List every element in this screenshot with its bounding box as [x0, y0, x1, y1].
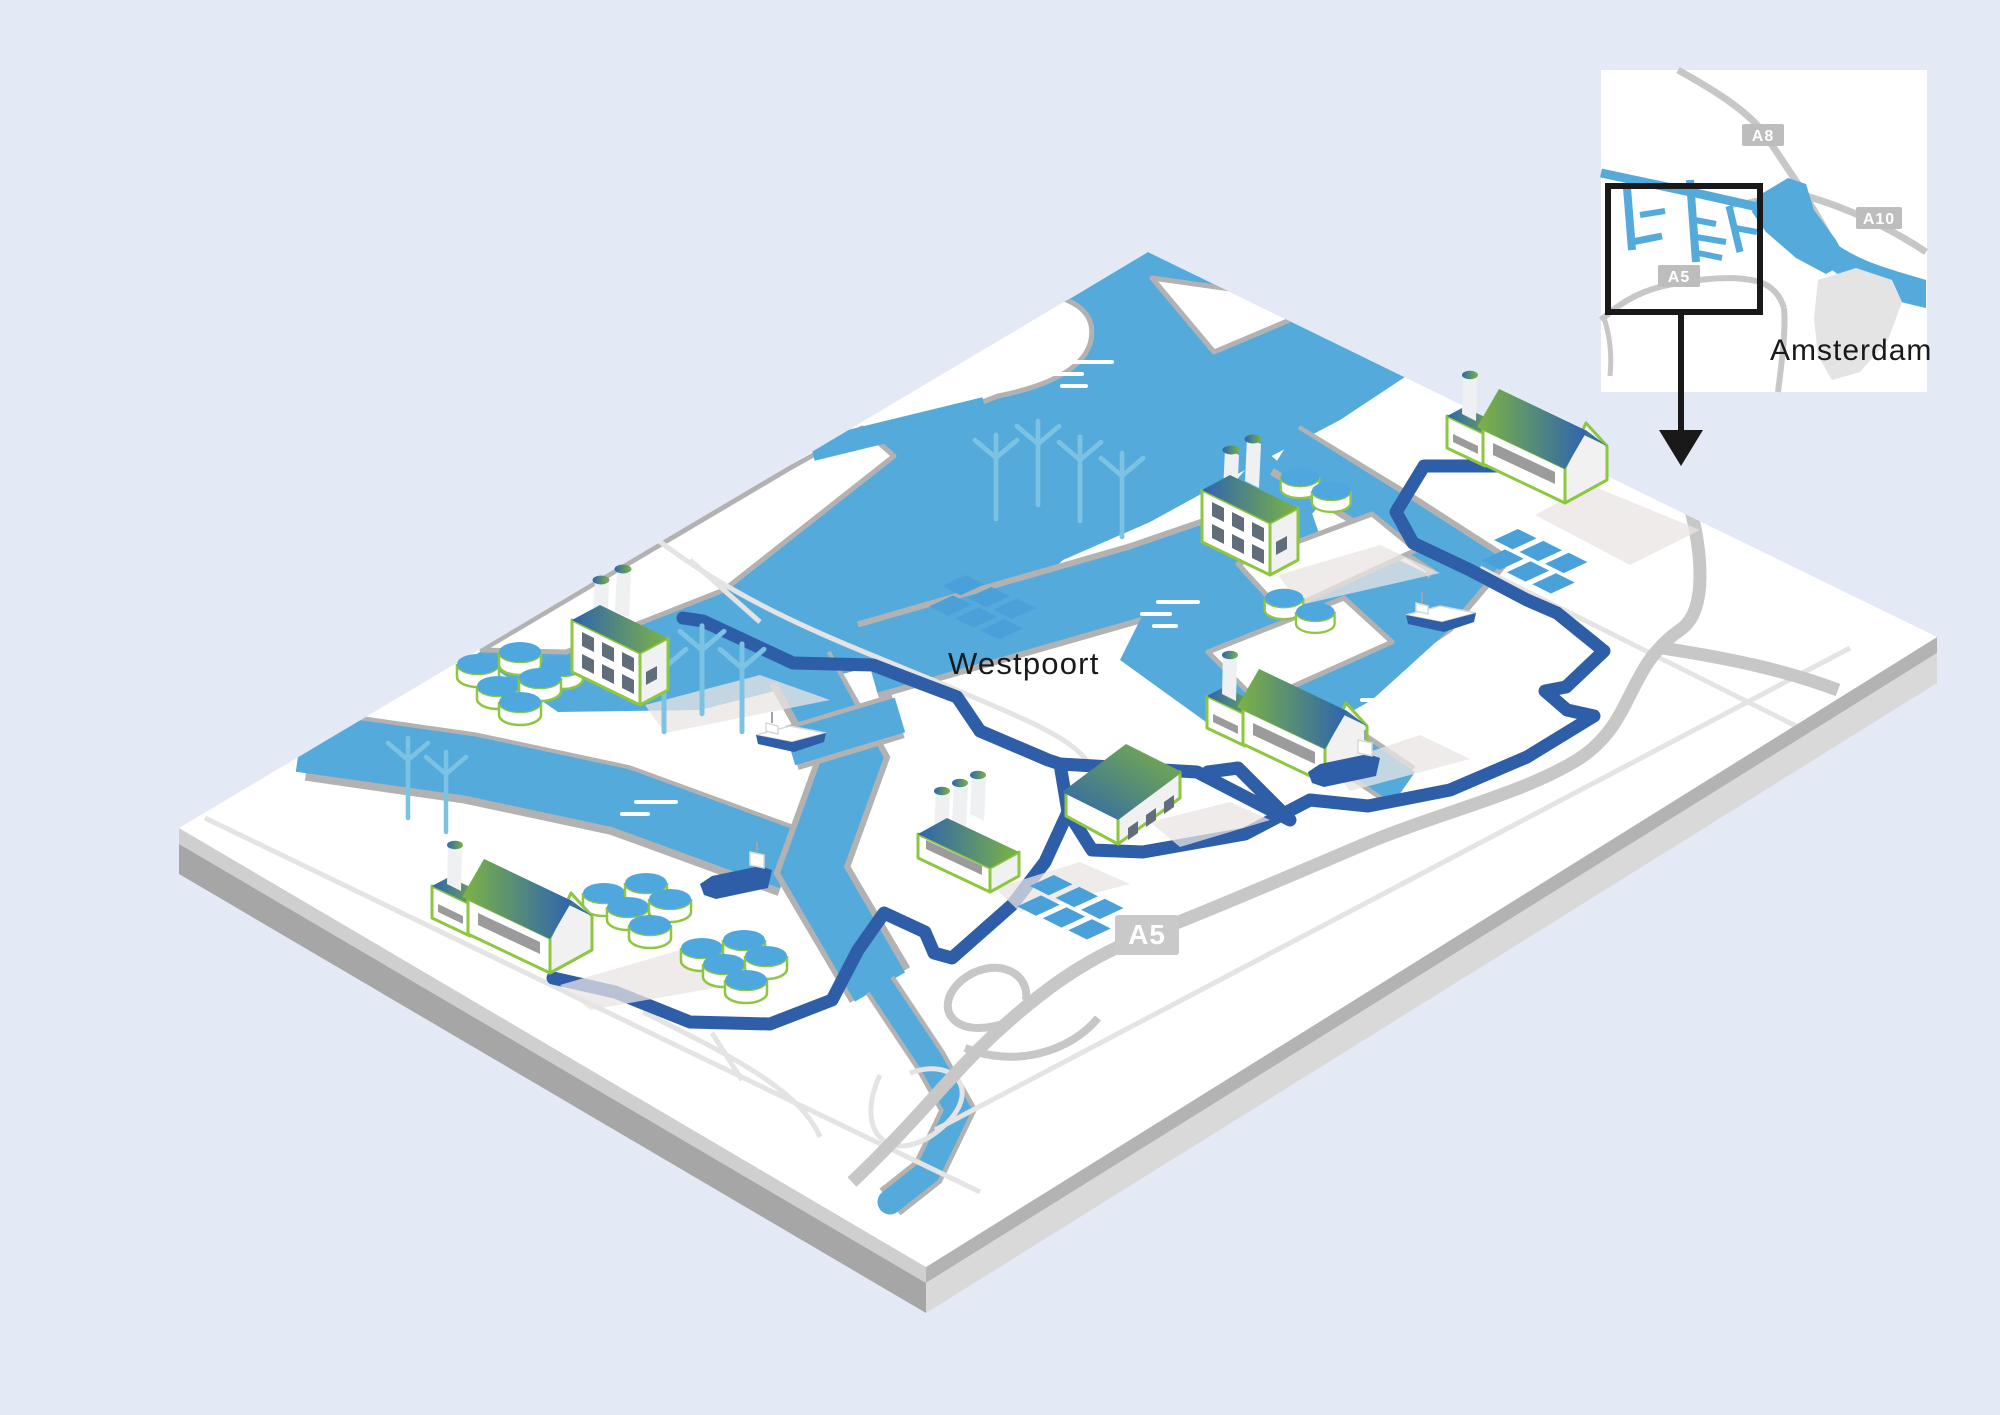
city-label: Amsterdam — [1770, 334, 1932, 367]
highway-badge-a5: A5 — [1115, 915, 1179, 955]
highway-badge-a5-text: A5 — [1128, 919, 1166, 950]
area-label: Westpoort — [948, 646, 1100, 681]
svg-text:A8: A8 — [1752, 128, 1774, 145]
westpoort-map-illustration: Westpoort A5 — [0, 0, 2000, 1415]
inset-badge-a5: A5 — [1658, 265, 1700, 287]
inset-badge-a10: A10 — [1856, 207, 1902, 229]
inset-badge-a8: A8 — [1742, 124, 1784, 146]
svg-text:A5: A5 — [1668, 269, 1690, 286]
svg-text:A10: A10 — [1863, 211, 1895, 228]
